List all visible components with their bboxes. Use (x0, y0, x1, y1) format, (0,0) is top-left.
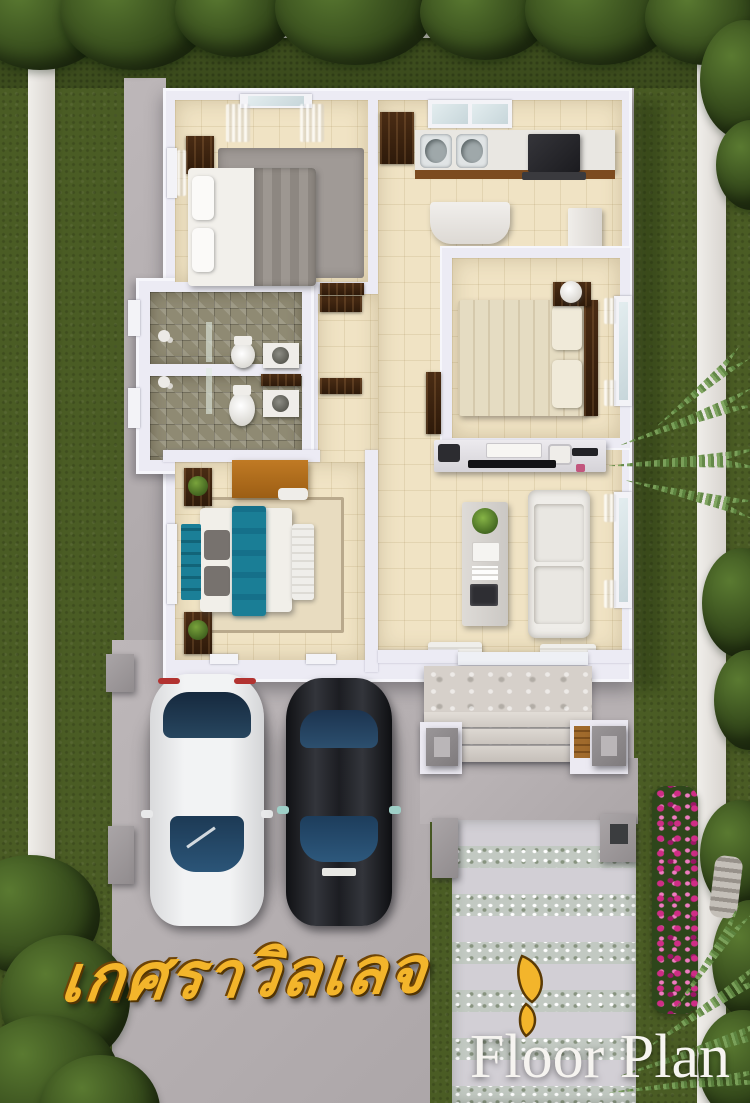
gate-pillar-slot (610, 824, 628, 844)
taillight (234, 678, 256, 684)
master-window-left (167, 524, 177, 604)
side-mirror (389, 806, 401, 814)
shower-head (158, 330, 170, 342)
sofa-cushion (534, 504, 584, 562)
table-magazine (470, 584, 498, 606)
bathroom-1-window (128, 300, 140, 336)
flat-tv (468, 460, 556, 468)
bathroom-1-door-open (320, 296, 362, 312)
sink-bowl (425, 139, 447, 163)
bed-pillow (192, 228, 214, 272)
side-mirror (261, 810, 273, 818)
floor-plan-render: เกศราวิลเลจ Floor Plan (0, 0, 750, 1103)
table-plant (472, 508, 498, 534)
window-pane (432, 104, 468, 124)
front-door-threshold (458, 652, 588, 665)
bathroom-2-floor (150, 376, 302, 460)
curtain (604, 494, 616, 522)
windshield (300, 816, 378, 862)
console-sink (438, 444, 460, 462)
living-bottom-wall (378, 650, 458, 663)
potted-plant (188, 620, 208, 640)
vanity-basin (272, 395, 289, 412)
entry-door-open (380, 112, 414, 164)
refrigerator (568, 208, 602, 248)
bed-end-bench (292, 524, 314, 600)
headboard (584, 300, 598, 416)
console-remote (572, 448, 598, 456)
master-window-bottom (306, 654, 336, 664)
shower-glass (206, 368, 212, 414)
potted-plant (188, 476, 208, 496)
curtain (177, 150, 186, 196)
black-car (286, 678, 392, 926)
shower-head (158, 376, 170, 388)
license-plate (322, 868, 356, 876)
bedroom-front-window-left (167, 148, 177, 198)
bed-pillow (192, 176, 214, 220)
bed-pillow (552, 360, 582, 408)
bed-pillow-gray (204, 530, 230, 560)
window-pane (619, 302, 628, 400)
curtain (226, 104, 250, 142)
window-pane (248, 96, 304, 106)
master-headboard-teal (181, 524, 201, 600)
bedroom-front-door-open (320, 283, 364, 295)
kitchen-appliance-shelf (522, 172, 586, 180)
caption-floor-plan: Floor Plan (330, 1022, 730, 1093)
house-shadow (636, 100, 662, 690)
curtain (300, 104, 324, 142)
console-tray (486, 443, 542, 458)
lot-wall-stub-lower (108, 826, 134, 884)
bathroom-2-window (128, 388, 140, 428)
bed-pillow-gray (204, 566, 230, 596)
shower-glass (206, 322, 212, 362)
living-bottom-wall (588, 650, 632, 663)
bed-pillow (552, 306, 582, 350)
master-window-bottom (210, 654, 238, 664)
pink-accessory (576, 464, 585, 472)
planter-core (434, 737, 450, 757)
side-mirror (277, 806, 289, 814)
white-car (150, 674, 264, 926)
planter-core (601, 736, 617, 756)
table-lamp (560, 281, 582, 303)
sunroof-glass (170, 816, 244, 872)
desk-chair (278, 488, 308, 500)
flower-bed (652, 786, 698, 1014)
sofa-cushion (534, 566, 584, 624)
table-books (472, 566, 498, 580)
rear-window (163, 692, 251, 738)
toilet-tank (234, 336, 252, 345)
dining-table (430, 202, 510, 244)
table-tray (472, 542, 500, 562)
vanity-basin (272, 347, 289, 364)
vanity-shelf (261, 374, 301, 386)
toilet (229, 392, 255, 426)
bedroom-middle-door-open (426, 372, 441, 434)
bathroom-2-door-open (320, 378, 362, 394)
bed-blanket-gray (254, 168, 316, 286)
kitchen-tv (528, 134, 580, 172)
planter-wood-tray (574, 726, 590, 758)
curtain (604, 580, 616, 608)
toilet (231, 342, 255, 368)
window-pane (619, 498, 628, 602)
side-mirror (141, 810, 153, 818)
lot-wall-stub-upper (106, 654, 134, 692)
taillight (158, 678, 180, 684)
bed-runner-teal (232, 506, 266, 616)
sink-bowl (461, 139, 483, 163)
window-pane (472, 104, 508, 124)
master-right-wall (365, 450, 378, 672)
gate-pillar-driveway (432, 818, 458, 878)
curtain (604, 380, 616, 406)
toilet-tank (233, 385, 251, 395)
curtain (604, 298, 616, 324)
rear-window (300, 710, 378, 748)
